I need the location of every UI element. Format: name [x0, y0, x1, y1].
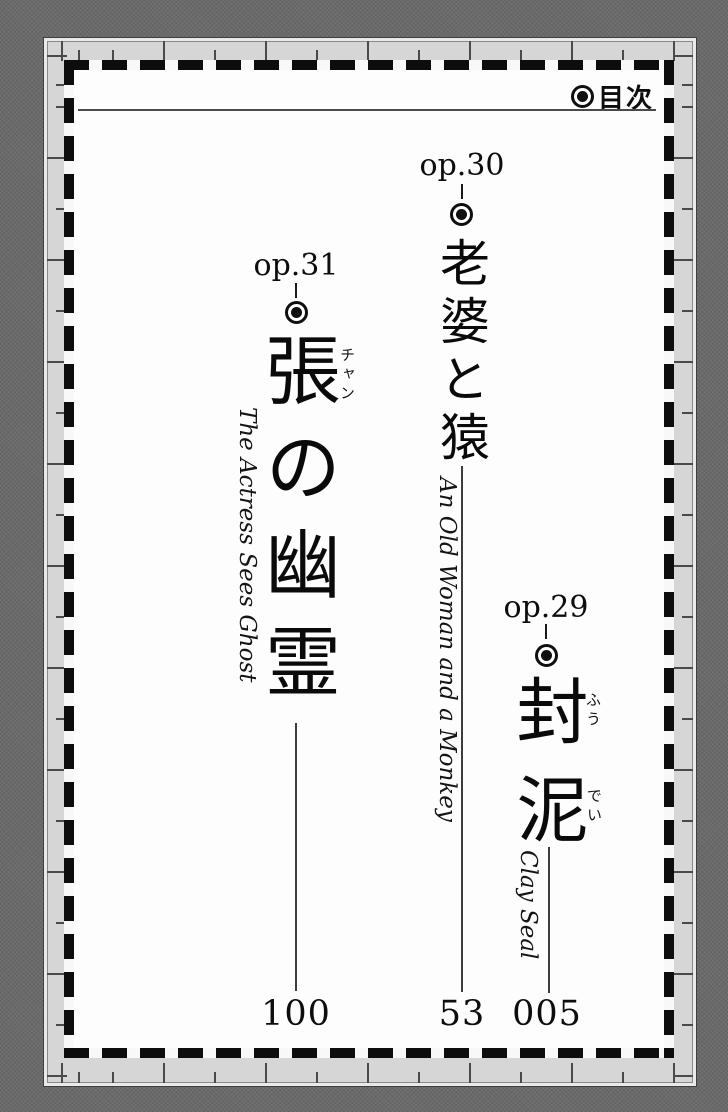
header-rule — [78, 109, 656, 111]
chapter-title: 張の幽霊 — [258, 331, 334, 719]
manga-toc-page: 目次 op.31 張の幽霊 チャン The Actress Sees Ghost… — [0, 0, 728, 1112]
frame-brick-pattern-bottom — [47, 1063, 693, 1083]
dashed-border-right — [664, 60, 674, 1058]
dashed-border-bottom — [64, 1048, 674, 1058]
leader-line — [548, 847, 550, 993]
frame-brick-pattern-right — [673, 41, 693, 1083]
dashed-border-left — [64, 60, 74, 1058]
dashed-border-top — [64, 60, 674, 70]
chapter-number: op.31 — [254, 248, 339, 283]
page-area — [64, 60, 674, 1058]
connector-line — [545, 624, 547, 639]
bullseye-icon — [285, 301, 308, 324]
chapter-number: op.29 — [504, 590, 589, 625]
furigana: でい — [586, 788, 601, 826]
bullseye-icon — [571, 85, 594, 108]
chapter-title: 老婆と猿 — [436, 237, 486, 469]
connector-line — [461, 184, 463, 199]
connector-line — [295, 283, 297, 298]
leader-line — [461, 466, 463, 992]
chapter-number: op.30 — [420, 148, 505, 183]
chapter-subtitle-en: Clay Seal — [515, 850, 541, 959]
chapter-subtitle-en: The Actress Sees Ghost — [234, 407, 260, 683]
chapter-subtitle-en: An Old Woman and a Monkey — [434, 477, 460, 822]
bullseye-icon — [535, 644, 558, 667]
page-number: 53 — [439, 994, 486, 1034]
furigana: ふう — [585, 692, 600, 730]
furigana: チャン — [339, 347, 354, 404]
frame-brick-pattern-top — [47, 41, 693, 61]
page-number: 005 — [512, 994, 582, 1034]
chapter-title: 封泥 — [510, 674, 582, 870]
page-number: 100 — [261, 994, 331, 1034]
bullseye-icon — [450, 203, 473, 226]
leader-line — [295, 723, 297, 991]
